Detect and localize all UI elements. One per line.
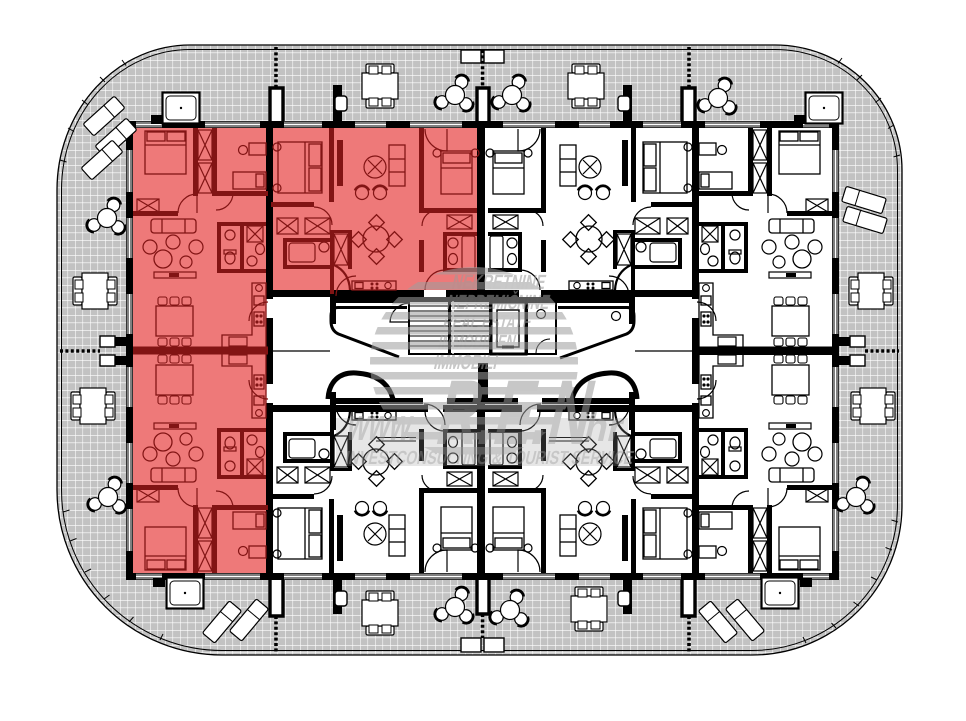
- svg-text:INVESTCONSULTING & TOURIST SER: INVESTCONSULTING & TOURIST SERVICE: [343, 448, 636, 469]
- svg-text:www.: www.: [342, 400, 424, 450]
